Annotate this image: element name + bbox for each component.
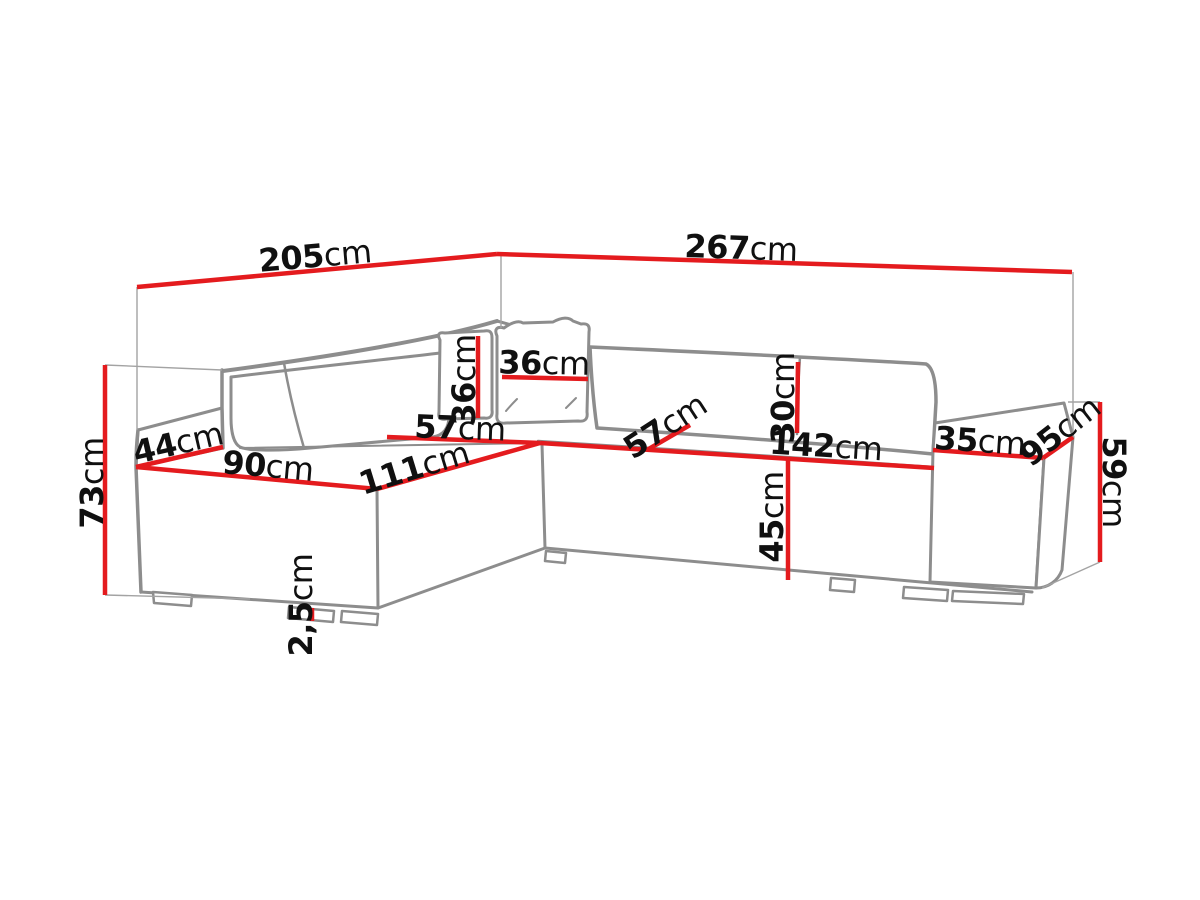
pouf-leg <box>952 591 1024 604</box>
leg <box>903 587 948 601</box>
dim-205-label: 205cm <box>257 232 373 280</box>
dim-267-label: 267cm <box>684 227 798 269</box>
dim-36-front-label: 36cm <box>498 343 590 383</box>
leg <box>830 578 855 592</box>
sofa-bottom-edge <box>141 548 1032 608</box>
inner-corner-edge <box>542 444 545 548</box>
leg <box>153 592 192 606</box>
dim-90-label: 90cm <box>221 443 315 489</box>
sofa-dimension-diagram: 205cm 267cm 73cm 44cm 90cm 111cm 57cm 36… <box>0 0 1200 900</box>
dim-2-5-label: 2,5cm <box>282 554 320 657</box>
dim-142-label: 142cm <box>768 424 883 469</box>
leg <box>341 611 378 625</box>
dim-45-label: 45cm <box>753 471 791 562</box>
sofa-legs <box>153 551 948 625</box>
chaise-front-right-edge <box>377 489 378 608</box>
dim-73-label: 73cm <box>73 437 111 528</box>
dim-59-label: 59cm <box>1095 436 1133 527</box>
pouf-front-face <box>930 450 1044 588</box>
dim-36-left-label: 36cm <box>445 334 483 425</box>
extension-line <box>105 365 222 370</box>
dim-44-label: 44cm <box>129 414 227 472</box>
leg <box>545 551 566 563</box>
diagram-canvas: 205cm 267cm 73cm 44cm 90cm 111cm 57cm 36… <box>0 0 1200 900</box>
dim-35-label: 35cm <box>933 419 1027 463</box>
